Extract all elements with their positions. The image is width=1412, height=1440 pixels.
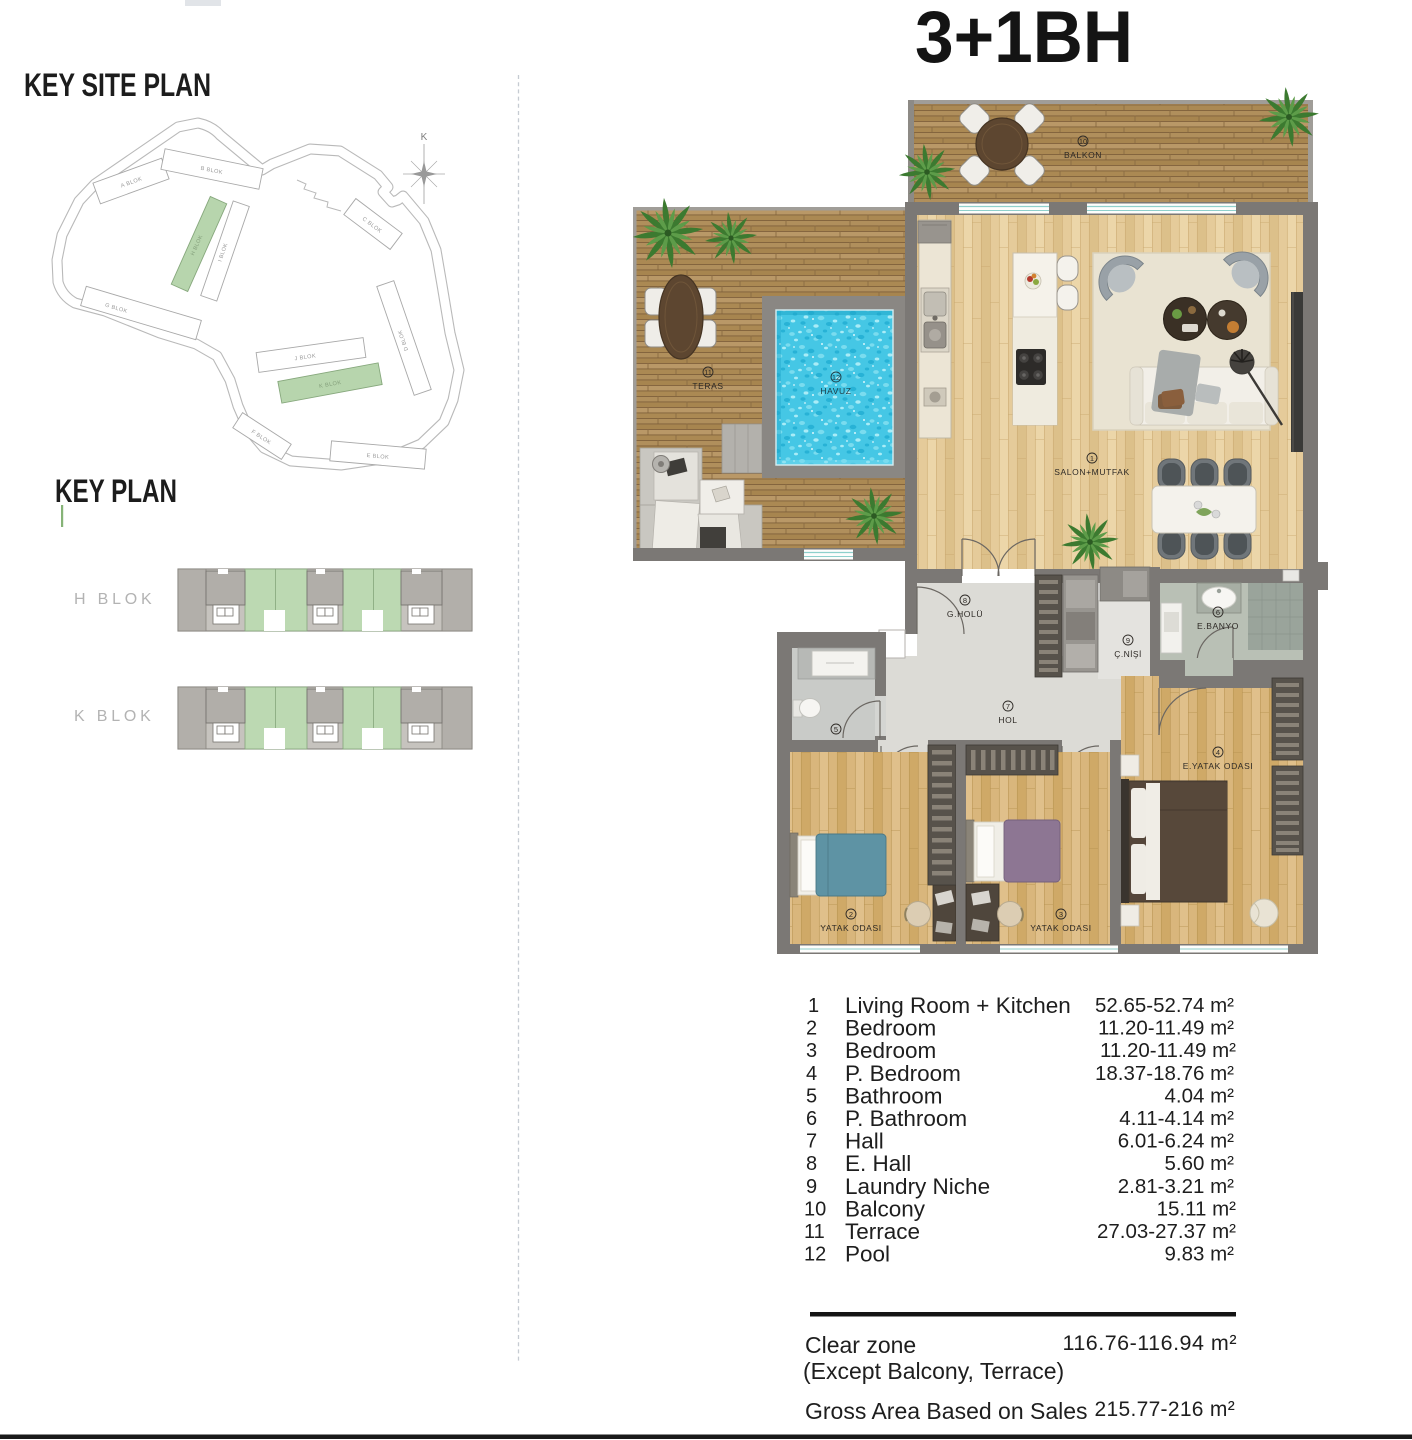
svg-text:11: 11 bbox=[804, 1221, 825, 1243]
svg-text:4: 4 bbox=[1216, 748, 1220, 757]
svg-text:7: 7 bbox=[1006, 702, 1010, 711]
svg-text:11: 11 bbox=[704, 368, 712, 377]
svg-text:TERAS: TERAS bbox=[692, 381, 723, 391]
svg-text:P. Bedroom: P. Bedroom bbox=[845, 1061, 961, 1086]
svg-text:Bathroom: Bathroom bbox=[845, 1083, 943, 1108]
svg-text:H BLOK: H BLOK bbox=[74, 591, 156, 608]
svg-text:9: 9 bbox=[1126, 636, 1130, 645]
svg-text:Ç.NİŞİ: Ç.NİŞİ bbox=[1114, 649, 1141, 659]
svg-text:K: K bbox=[421, 132, 428, 143]
svg-text:5: 5 bbox=[834, 725, 838, 734]
svg-text:KEY SITE PLAN: KEY SITE PLAN bbox=[24, 67, 211, 103]
svg-text:SALON+MUTFAK: SALON+MUTFAK bbox=[1054, 467, 1129, 477]
svg-text:6.01-6.24 m²: 6.01-6.24 m² bbox=[1118, 1130, 1234, 1153]
svg-text:2.81-3.21 m²: 2.81-3.21 m² bbox=[1118, 1175, 1234, 1198]
svg-text:Clear zone: Clear zone bbox=[805, 1332, 916, 1358]
svg-text:1: 1 bbox=[808, 995, 819, 1017]
svg-text:52.65-52.74 m²: 52.65-52.74 m² bbox=[1095, 994, 1234, 1017]
svg-text:Gross Area Based on Sales: Gross Area Based on Sales bbox=[805, 1398, 1088, 1424]
svg-text:YATAK ODASI: YATAK ODASI bbox=[820, 923, 881, 933]
svg-text:3: 3 bbox=[1059, 910, 1063, 919]
svg-text:9: 9 bbox=[806, 1176, 817, 1198]
svg-text:18.37-18.76 m²: 18.37-18.76 m² bbox=[1095, 1062, 1234, 1085]
svg-text:6: 6 bbox=[806, 1108, 817, 1130]
svg-text:YATAK ODASI: YATAK ODASI bbox=[1030, 923, 1091, 933]
svg-text:11.20-11.49 m²: 11.20-11.49 m² bbox=[1100, 1039, 1236, 1062]
svg-text:P. Bathroom: P. Bathroom bbox=[845, 1106, 967, 1131]
svg-text:G.HOLÜ: G.HOLÜ bbox=[947, 609, 983, 619]
svg-text:5: 5 bbox=[806, 1085, 817, 1107]
svg-text:Terrace: Terrace bbox=[845, 1219, 920, 1244]
svg-text:K BLOK: K BLOK bbox=[74, 708, 155, 725]
svg-text:1: 1 bbox=[1090, 454, 1094, 463]
svg-text:116.76-116.94 m²: 116.76-116.94 m² bbox=[1062, 1331, 1237, 1355]
svg-text:9.83 m²: 9.83 m² bbox=[1165, 1243, 1235, 1266]
svg-text:4.11-4.14 m²: 4.11-4.14 m² bbox=[1119, 1107, 1234, 1130]
svg-text:E.YATAK ODASI: E.YATAK ODASI bbox=[1183, 761, 1254, 771]
svg-text:4: 4 bbox=[806, 1063, 817, 1085]
svg-text:BALKON: BALKON bbox=[1064, 150, 1102, 160]
svg-text:(Except Balcony, Terrace): (Except Balcony, Terrace) bbox=[803, 1358, 1064, 1384]
svg-text:KEY PLAN: KEY PLAN bbox=[55, 473, 177, 509]
svg-text:11.20-11.49 m²: 11.20-11.49 m² bbox=[1098, 1017, 1234, 1040]
svg-text:10: 10 bbox=[804, 1198, 826, 1220]
svg-text:4.04 m²: 4.04 m² bbox=[1165, 1084, 1235, 1107]
svg-text:Living Room + Kitchen: Living Room + Kitchen bbox=[845, 993, 1071, 1018]
svg-text:Hall: Hall bbox=[845, 1129, 884, 1154]
svg-text:E. Hall: E. Hall bbox=[845, 1151, 911, 1176]
svg-text:Laundry Niche: Laundry Niche bbox=[845, 1174, 990, 1199]
svg-text:6: 6 bbox=[1216, 608, 1220, 617]
svg-text:3+1BH: 3+1BH bbox=[915, 0, 1133, 78]
svg-text:Bedroom: Bedroom bbox=[845, 1016, 936, 1041]
svg-text:E.BANYO: E.BANYO bbox=[1197, 621, 1239, 631]
svg-text:12: 12 bbox=[804, 1244, 826, 1266]
svg-text:Bedroom: Bedroom bbox=[845, 1038, 936, 1063]
svg-text:8: 8 bbox=[806, 1153, 817, 1175]
svg-text:Balcony: Balcony bbox=[845, 1196, 926, 1221]
svg-text:10: 10 bbox=[1079, 137, 1087, 146]
svg-text:8: 8 bbox=[963, 596, 967, 605]
svg-text:5.60 m²: 5.60 m² bbox=[1165, 1152, 1235, 1175]
svg-text:2: 2 bbox=[806, 1018, 817, 1040]
svg-text:HOL: HOL bbox=[998, 715, 1017, 725]
svg-text:7: 7 bbox=[806, 1131, 817, 1153]
svg-text:3: 3 bbox=[806, 1040, 817, 1062]
svg-text:Pool: Pool bbox=[845, 1242, 890, 1267]
svg-text:27.03-27.37 m²: 27.03-27.37 m² bbox=[1097, 1220, 1236, 1243]
svg-text:215.77-216 m²: 215.77-216 m² bbox=[1095, 1398, 1235, 1421]
svg-text:15.11 m²: 15.11 m² bbox=[1157, 1197, 1237, 1220]
svg-text:HAVUZ: HAVUZ bbox=[820, 386, 851, 396]
svg-text:2: 2 bbox=[849, 910, 853, 919]
svg-text:12: 12 bbox=[832, 373, 840, 382]
